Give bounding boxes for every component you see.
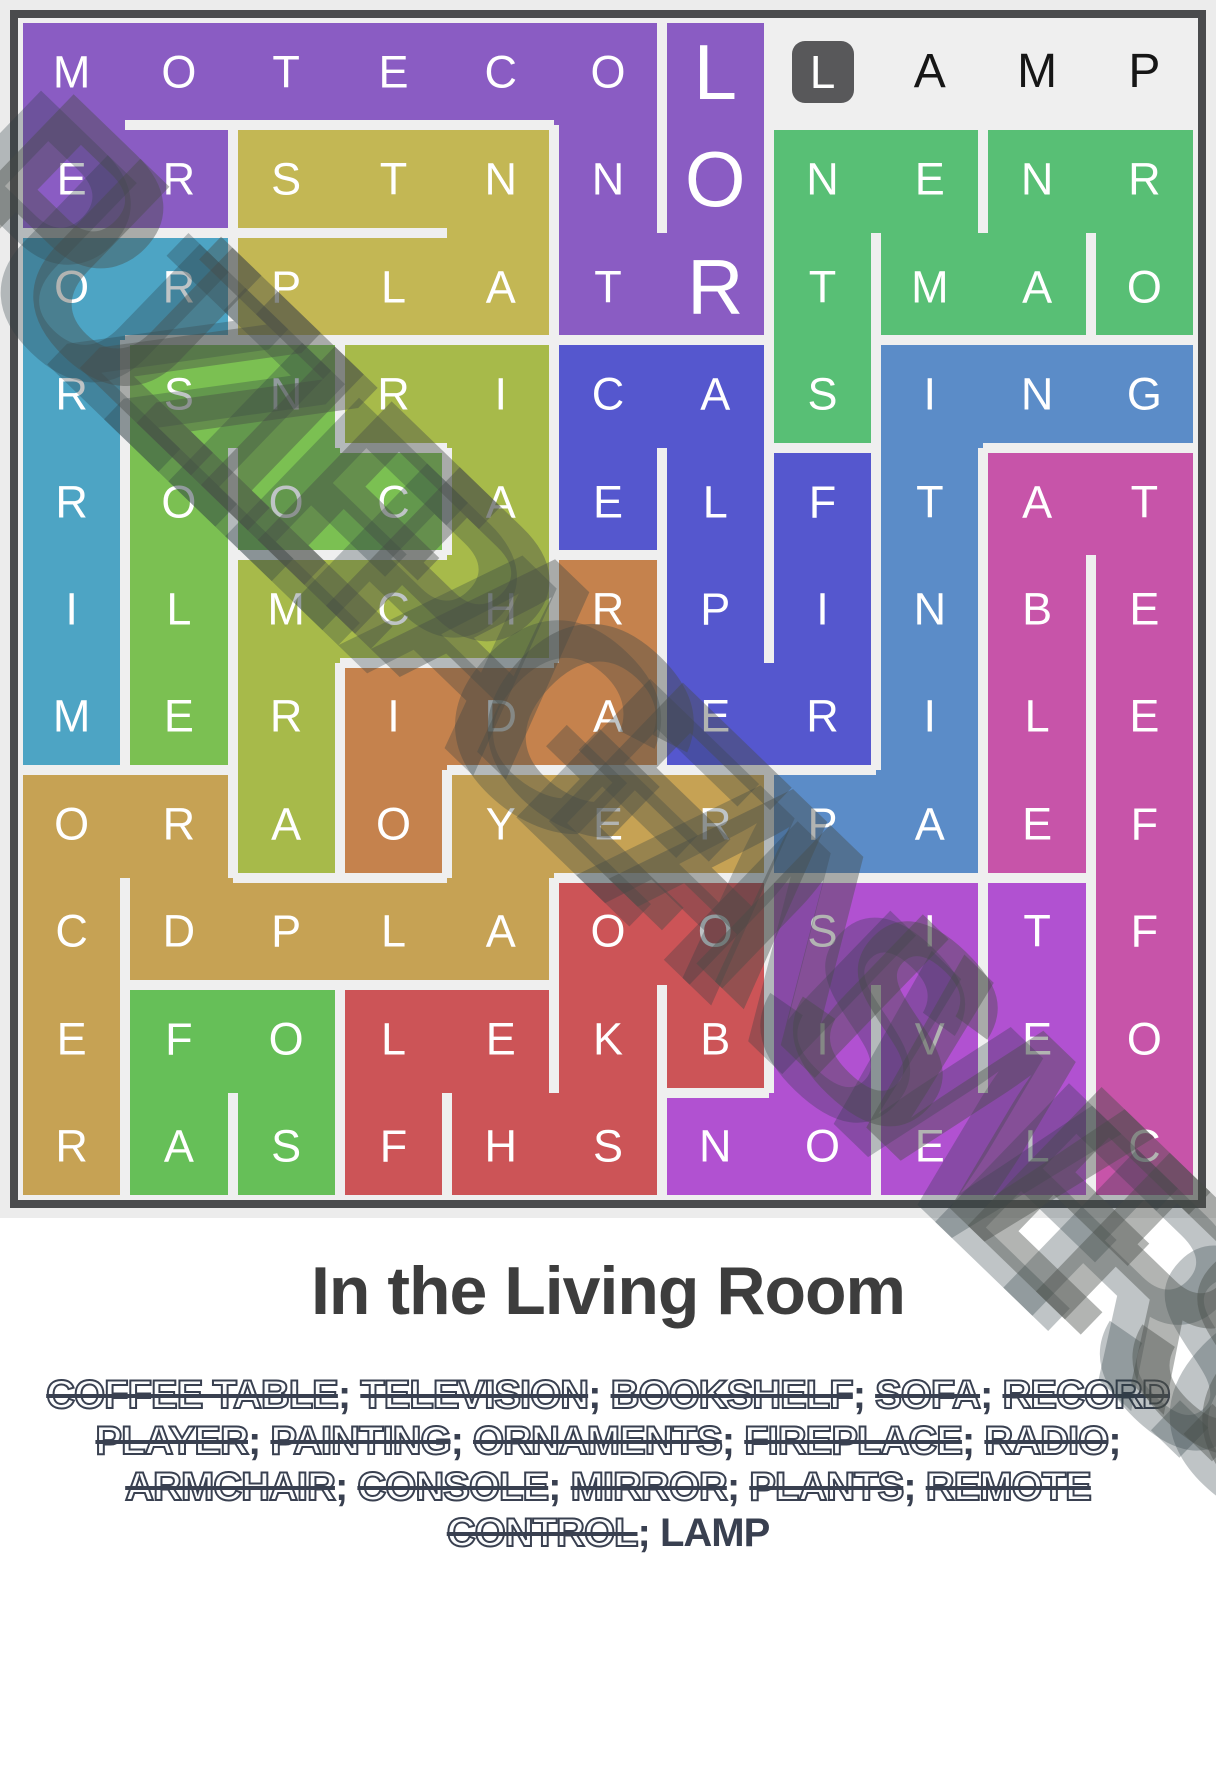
word-list-separator: ; xyxy=(335,1465,357,1509)
grid-letter: E xyxy=(1129,694,1159,739)
word-list-item: TELEVISION xyxy=(360,1373,588,1417)
grid-letter: I xyxy=(924,372,937,417)
word-list-separator: ; xyxy=(962,1419,984,1463)
grid-letter: R xyxy=(592,587,625,632)
grid-letter: T xyxy=(1023,909,1051,954)
word-list-item: SOFA xyxy=(875,1373,980,1417)
grid-letter: O xyxy=(590,909,625,954)
grid-letter: O xyxy=(269,1016,304,1061)
grid-letter: P xyxy=(808,801,838,846)
grid-letter: E xyxy=(486,1016,516,1061)
word-list-separator: ; xyxy=(853,1373,875,1417)
grid-letter: L xyxy=(1025,694,1050,739)
grid-letter: L xyxy=(166,587,191,632)
puzzle-title: In the Living Room xyxy=(0,1252,1216,1330)
grid-letter: M xyxy=(911,264,949,309)
word-list-item: ARMCHAIR xyxy=(125,1465,335,1509)
word-list-item: PAINTING xyxy=(270,1419,450,1463)
grid-letter: M xyxy=(53,49,91,94)
word-list-item: COFFEE TABLE xyxy=(46,1373,338,1417)
grid-letter: S xyxy=(808,909,838,954)
grid-letter: N xyxy=(806,157,839,202)
grid-letter: A xyxy=(486,479,516,524)
grid-letter: T xyxy=(380,157,408,202)
word-list-separator: ; xyxy=(903,1465,925,1509)
word-list-separator: ; xyxy=(338,1373,360,1417)
word-list-separator: ; xyxy=(980,1373,1002,1417)
grid-letter: O xyxy=(376,801,411,846)
grid-letter: S xyxy=(164,372,194,417)
grid-letter: P xyxy=(700,587,730,632)
grid-letter: F xyxy=(380,1124,408,1169)
grid-letter: A xyxy=(486,909,516,954)
grid-letter: O xyxy=(1127,264,1162,309)
grid-letter: C xyxy=(592,372,625,417)
grid-letter: L xyxy=(694,33,737,111)
word-list-separator: ; xyxy=(548,1465,570,1509)
grid-letter: B xyxy=(1022,587,1052,632)
word-list-separator: ; xyxy=(727,1465,749,1509)
grid-letter: E xyxy=(915,1124,945,1169)
word-list-item: BOOKSHELF xyxy=(611,1373,853,1417)
word-list-separator: ; xyxy=(1108,1419,1120,1463)
grid-letter: R xyxy=(163,157,196,202)
word-list-separator: ; xyxy=(638,1511,660,1555)
grid-letter: R xyxy=(1128,157,1161,202)
grid-letter: I xyxy=(65,587,78,632)
grid-letter: O xyxy=(54,264,89,309)
grid-letter: E xyxy=(700,694,730,739)
grid-letter: S xyxy=(271,1124,301,1169)
grid-letter: R xyxy=(163,264,196,309)
grid-letter: L xyxy=(1025,1124,1050,1169)
grid-letter: N xyxy=(270,372,303,417)
grid-letter: O xyxy=(805,1124,840,1169)
grid-letter: A xyxy=(1022,479,1052,524)
grid-letter: T xyxy=(272,49,300,94)
grid-letter: C xyxy=(1128,1124,1161,1169)
word-list-item: PLANTS xyxy=(749,1465,903,1509)
grid-letter: O xyxy=(54,801,89,846)
grid-letter: G xyxy=(1127,372,1162,417)
grid-letter: Y xyxy=(486,801,516,846)
word-list: COFFEE TABLE; TELEVISION; BOOKSHELF; SOF… xyxy=(43,1372,1173,1556)
grid-letter: P xyxy=(271,264,301,309)
grid-letter: T xyxy=(1131,479,1159,524)
grid-letter: I xyxy=(816,587,829,632)
grid-letter: E xyxy=(1022,1016,1052,1061)
grid-letter: E xyxy=(57,157,87,202)
grid-letter: D xyxy=(484,694,517,739)
grid-letter: E xyxy=(1022,801,1052,846)
grid-letter: E xyxy=(1129,587,1159,632)
grid-letter: V xyxy=(915,1016,945,1061)
grid-letter: S xyxy=(808,372,838,417)
grid-letter: O xyxy=(685,140,746,218)
grid-letter: R xyxy=(806,694,839,739)
grid-letter: A xyxy=(700,372,730,417)
grid-letter: R xyxy=(55,1124,88,1169)
grid-letter: N xyxy=(1021,372,1054,417)
grid-letter: I xyxy=(924,909,937,954)
word-list-item: CONSOLE xyxy=(357,1465,548,1509)
grid-letter: E xyxy=(915,157,945,202)
grid-letter: R xyxy=(687,248,743,326)
grid-letter: E xyxy=(593,801,623,846)
grid-letter: E xyxy=(57,1016,87,1061)
grid-letter: N xyxy=(1021,157,1054,202)
grid-letter: L xyxy=(381,909,406,954)
grid-letter: R xyxy=(55,372,88,417)
word-list-separator: ; xyxy=(248,1419,270,1463)
grid-letter: A xyxy=(271,801,301,846)
grid-letter: I xyxy=(494,372,507,417)
grid-letter: L xyxy=(381,264,406,309)
grid-letter: R xyxy=(55,479,88,524)
grid-letter: F xyxy=(165,1016,193,1061)
grid-letter: A xyxy=(915,801,945,846)
word-list-item: LAMP xyxy=(660,1511,769,1555)
grid-letter: F xyxy=(1131,909,1159,954)
word-list-item: ORNAMENTS xyxy=(473,1419,722,1463)
grid-letter: I xyxy=(816,1016,829,1061)
grid-letter: C xyxy=(377,587,410,632)
grid-letter: O xyxy=(161,49,196,94)
grid-letter: F xyxy=(1131,801,1159,846)
grid-letter: P xyxy=(271,909,301,954)
grid-letter: R xyxy=(699,801,732,846)
grid-letter: P xyxy=(1128,48,1160,96)
grid-letter: I xyxy=(387,694,400,739)
grid-letter: C xyxy=(377,479,410,524)
word-list-item: MIRROR xyxy=(571,1465,727,1509)
grid-letter: L xyxy=(703,479,728,524)
grid-letter: R xyxy=(377,372,410,417)
grid-letter: I xyxy=(924,694,937,739)
word-list-separator: ; xyxy=(588,1373,610,1417)
grid-letter: O xyxy=(161,479,196,524)
grid-letter: R xyxy=(163,801,196,846)
grid-letter: M xyxy=(1017,48,1057,96)
grid-letter: E xyxy=(164,694,194,739)
grid-letter: A xyxy=(164,1124,194,1169)
grid-letter: H xyxy=(484,587,517,632)
grid-letter: O xyxy=(1127,1016,1162,1061)
grid-letter: C xyxy=(484,49,517,94)
grid-letter: A xyxy=(1022,264,1052,309)
grid-letter: T xyxy=(809,264,837,309)
grid-letter: L xyxy=(810,49,836,95)
grid-letter: S xyxy=(593,1124,623,1169)
grid-letter: O xyxy=(269,479,304,524)
grid-background: MOTECOLLAMPERSTNNONENRORPLATRTMAORSNRICA… xyxy=(0,0,1216,1218)
grid-letter: N xyxy=(484,157,517,202)
puzzle-grid[interactable]: MOTECOLLAMPERSTNNONENRORPLATRTMAORSNRICA… xyxy=(10,10,1206,1208)
grid-letter: N xyxy=(699,1124,732,1169)
grid-letter: S xyxy=(271,157,301,202)
grid-letter: L xyxy=(381,1016,406,1061)
grid-letter: B xyxy=(700,1016,730,1061)
grid-letter: A xyxy=(486,264,516,309)
word-list-item: FIREPLACE xyxy=(744,1419,962,1463)
grid-letter: E xyxy=(378,49,408,94)
grid-letter: F xyxy=(809,479,837,524)
grid-letter: D xyxy=(163,909,196,954)
grid-letter: O xyxy=(590,49,625,94)
grid-letter: R xyxy=(270,694,303,739)
word-list-item: RADIO xyxy=(984,1419,1108,1463)
grid-letter: H xyxy=(484,1124,517,1169)
grid-letter: M xyxy=(53,694,91,739)
grid-letter: E xyxy=(593,479,623,524)
grid-letter: K xyxy=(593,1016,623,1061)
grid-letter: M xyxy=(267,587,305,632)
grid-letter: T xyxy=(916,479,944,524)
word-list-separator: ; xyxy=(722,1419,744,1463)
grid-letter: A xyxy=(593,694,623,739)
word-list-separator: ; xyxy=(451,1419,473,1463)
grid-letter: T xyxy=(594,264,622,309)
grid-letter: N xyxy=(914,587,947,632)
grid-letter: C xyxy=(55,909,88,954)
grid-letter: O xyxy=(698,909,733,954)
grid-letter: A xyxy=(914,48,946,96)
grid-letter: N xyxy=(592,157,625,202)
